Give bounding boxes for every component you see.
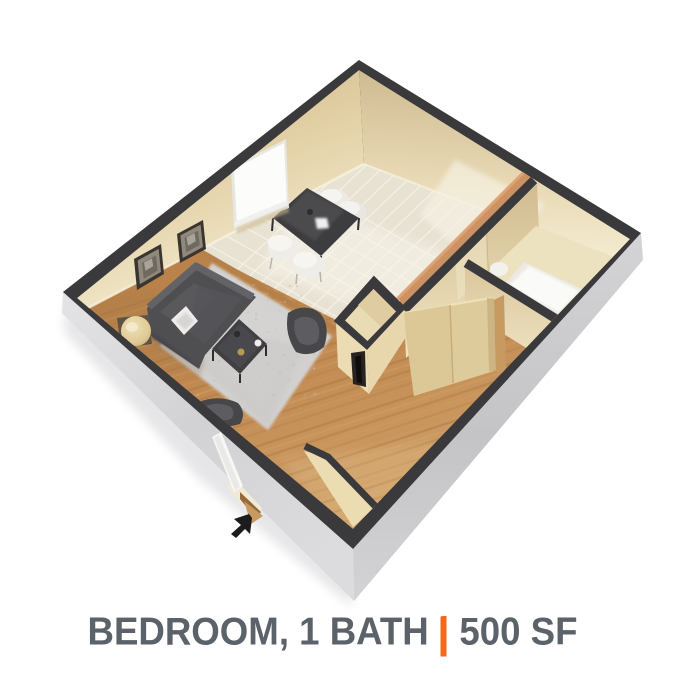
svg-text:BEDROOM, 1 BATH | 500 SF: BEDROOM, 1 BATH | 500 SF bbox=[88, 611, 578, 654]
